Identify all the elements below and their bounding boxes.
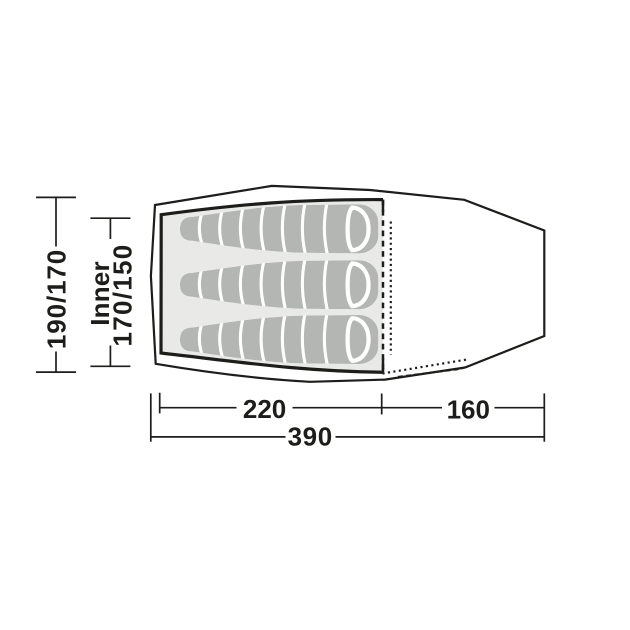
svg-text:160: 160 [447,394,490,424]
svg-text:190/170: 190/170 [42,249,72,349]
svg-text:220: 220 [243,394,286,424]
svg-text:390: 390 [288,422,333,452]
svg-text:170/150: 170/150 [108,243,138,346]
